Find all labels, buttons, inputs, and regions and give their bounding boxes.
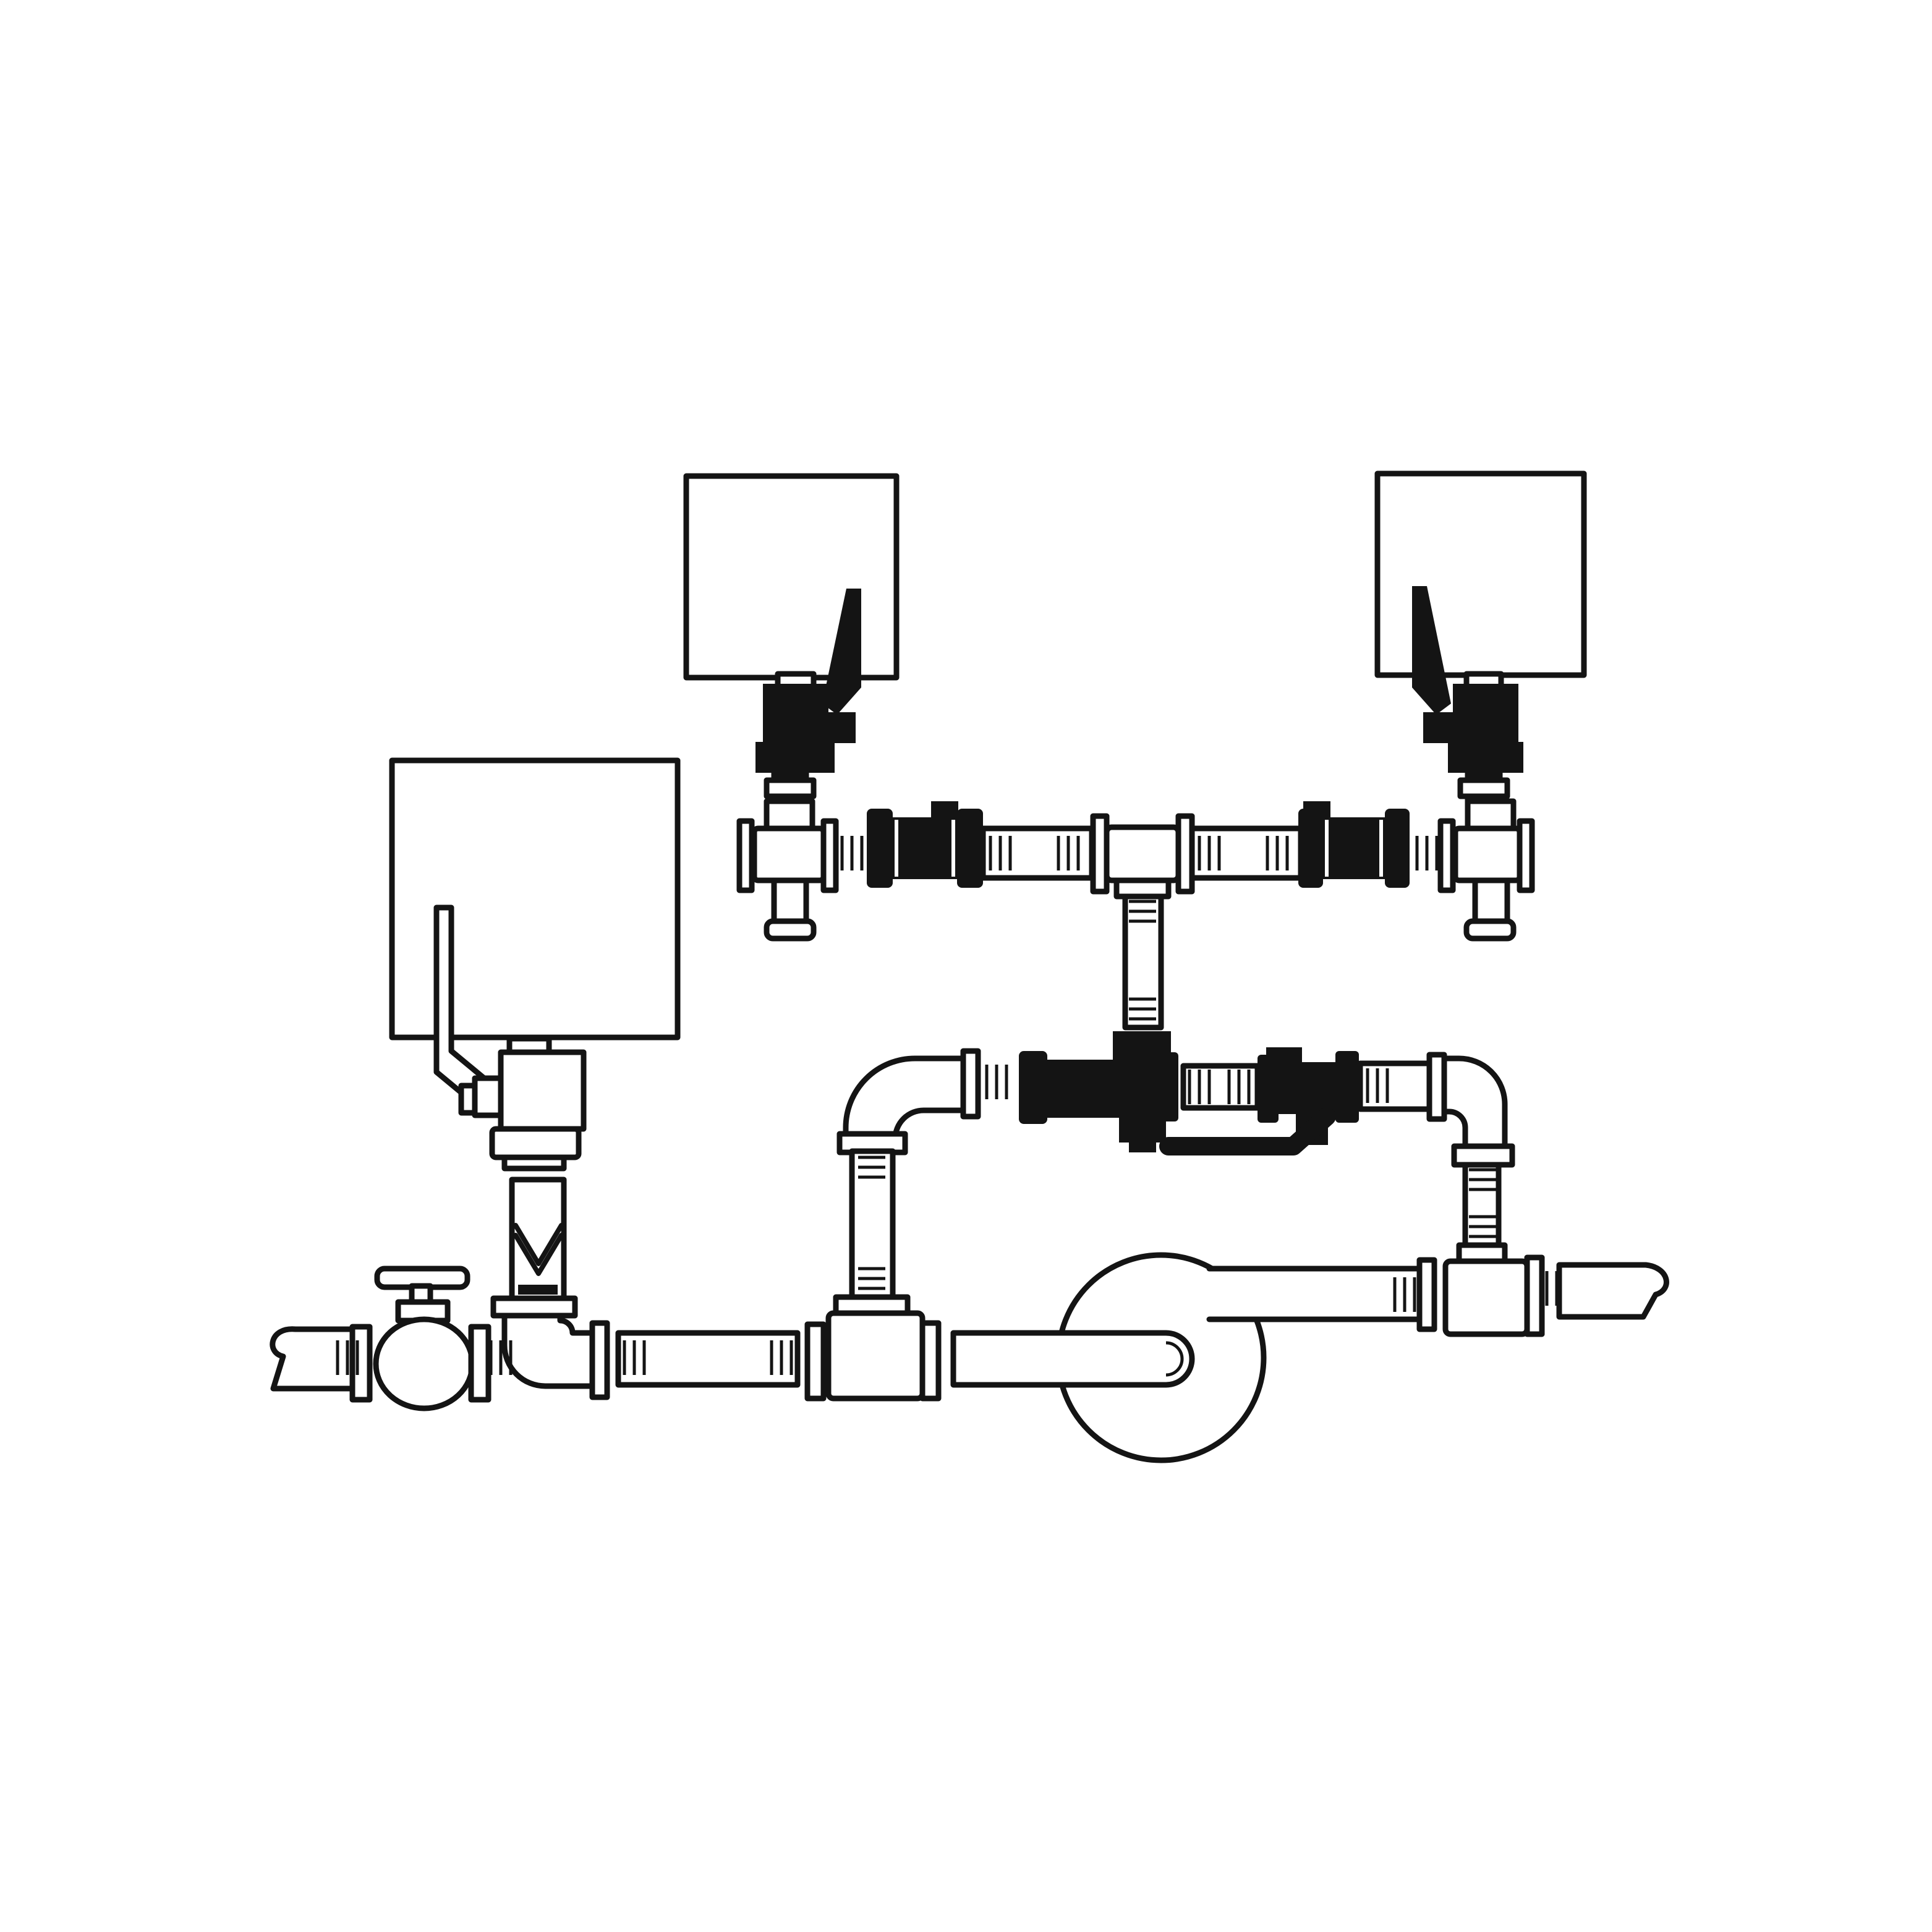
coupling-collar (1298, 809, 1323, 888)
valve-body (501, 1052, 584, 1129)
black-tee-middle (1019, 1031, 1178, 1152)
actuator-box-top-left (686, 476, 896, 678)
stub-nub (1129, 1143, 1156, 1152)
suction-pipe (953, 1333, 1192, 1385)
union-step (504, 1157, 564, 1168)
coupling-collar (1160, 1052, 1178, 1121)
union-band (1460, 780, 1507, 796)
pipe-open-end-right (1559, 1265, 1666, 1317)
tee-top-left (739, 801, 836, 938)
piping-diagram (0, 0, 1932, 1932)
globe-valve (338, 1269, 511, 1408)
drain-stub (1475, 880, 1507, 922)
union-flange (1440, 821, 1453, 890)
union-flange (592, 1323, 607, 1397)
elbow-middle-left (846, 1051, 978, 1139)
thread-band (518, 1285, 558, 1295)
union-flange (471, 1327, 488, 1400)
actuator-box-top-right (1377, 474, 1584, 675)
stub-cap (767, 921, 814, 938)
valve-body (376, 1319, 472, 1408)
union-flange (1527, 1258, 1542, 1334)
valve-gland (1423, 712, 1454, 743)
union-flange (1419, 1260, 1434, 1329)
tee-top-right (1440, 801, 1532, 938)
valve-body (1453, 684, 1518, 746)
stub-cap (1466, 921, 1513, 938)
tee-body (1445, 1261, 1527, 1334)
piping-diagram-page (0, 0, 1932, 1932)
valve-flange (1448, 742, 1523, 773)
union-flange (823, 821, 836, 890)
union-flange (922, 1323, 938, 1398)
end-flange (739, 821, 752, 890)
tee-body (1455, 828, 1520, 880)
drain-stub (774, 880, 806, 922)
tee-bottom-stub (1119, 1118, 1166, 1143)
check-fitting (493, 1180, 575, 1316)
valve-collar (1335, 1051, 1359, 1123)
tee-body (754, 828, 823, 880)
tee-top-center (1093, 816, 1192, 1028)
flex-coupling-top-left (867, 801, 983, 888)
coupling-collar (1385, 809, 1410, 888)
tee-body (828, 1313, 922, 1398)
coupling-collar (1019, 1051, 1047, 1124)
union-nut (492, 1129, 579, 1157)
valve-flange (755, 742, 835, 773)
pump (953, 1255, 1424, 1460)
valve-body (763, 684, 828, 746)
elbow-middle-right (1444, 1058, 1512, 1165)
elbow-bottom-left (504, 1316, 607, 1397)
tee-bottom-left (807, 1297, 938, 1398)
pipe (1183, 1066, 1258, 1108)
union-flange (807, 1324, 823, 1398)
coupling-nub (931, 801, 958, 820)
flex-coupling-top-right (1298, 801, 1410, 888)
discharge-pipe (1209, 1269, 1424, 1319)
union-flange (352, 1327, 370, 1400)
valve-collar (1258, 1055, 1279, 1123)
valve-gland (475, 1078, 501, 1115)
coupling-collar (867, 809, 893, 888)
coupling-collar (957, 809, 983, 888)
union-band (767, 780, 814, 796)
pipe-open-end-left (273, 1329, 354, 1389)
pipe (1360, 1063, 1429, 1109)
union-flange (963, 1051, 978, 1117)
riser-pipe (852, 1151, 893, 1298)
valve-gland (827, 712, 856, 743)
tee-body (1107, 827, 1178, 880)
tee-bottom-right (1445, 1245, 1542, 1334)
end-flange (1520, 821, 1532, 890)
